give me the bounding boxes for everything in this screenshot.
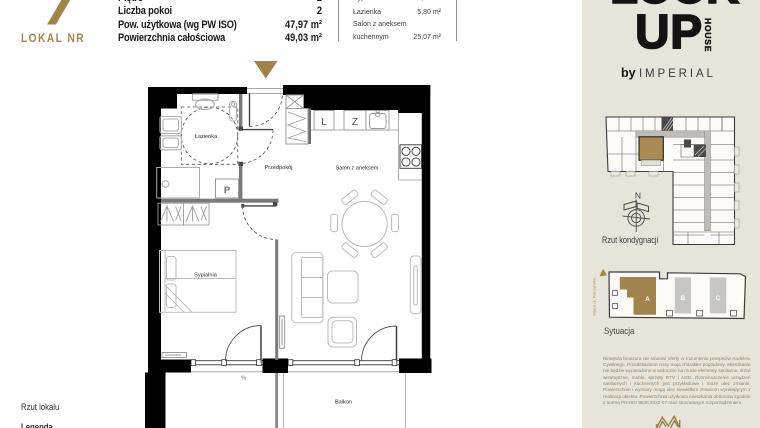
svg-text:N: N	[635, 191, 641, 201]
svg-text:Balkon: Balkon	[335, 400, 352, 406]
svg-text:Salon z aneksem: Salon z aneksem	[336, 166, 379, 172]
svg-text:Wjazd ul. Pełczyńska: Wjazd ul. Pełczyńska	[592, 277, 597, 316]
svg-text:Z: Z	[352, 116, 359, 128]
svg-text:Sypialnia: Sypialnia	[194, 273, 218, 279]
svg-text:A: A	[645, 296, 650, 303]
svg-text:B: B	[681, 295, 686, 302]
svg-text:L: L	[321, 116, 327, 128]
svg-text:C: C	[716, 295, 721, 302]
svg-text:Łazienka: Łazienka	[195, 134, 218, 140]
svg-text:P: P	[224, 185, 231, 196]
svg-text:Przedpokój: Przedpokój	[265, 165, 293, 171]
svg-text:%: %	[241, 376, 246, 382]
